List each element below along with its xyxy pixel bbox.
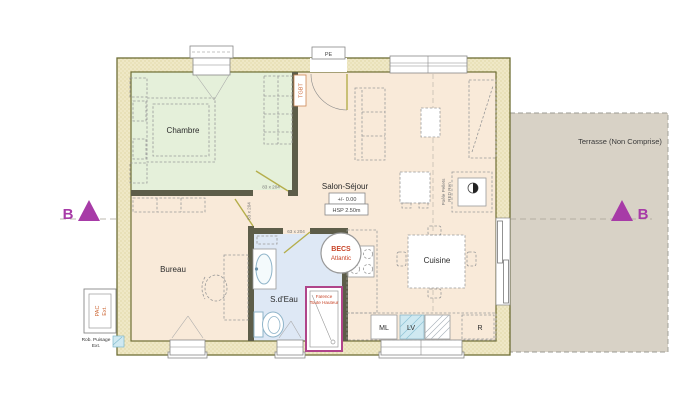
outdoor-tap-label1: Rob. Puisage bbox=[82, 337, 111, 343]
ceiling-height-label: HSP 2.50m bbox=[332, 208, 360, 214]
wall-chambre-bottom-stub bbox=[288, 190, 298, 196]
level-annotations: +/- 0.00 HSP 2.50m bbox=[325, 193, 368, 215]
washbasin-bowl bbox=[256, 254, 272, 284]
heat-pump-label2: Ext. bbox=[102, 306, 108, 316]
toilet bbox=[254, 312, 284, 337]
wall-sdeau-top-left bbox=[254, 228, 283, 234]
stove-label-line1: Poêle Pellets bbox=[441, 178, 446, 206]
water-heater: BECS Atlantic bbox=[321, 233, 361, 273]
heat-pump-label1: PAC bbox=[95, 306, 101, 317]
shower: Faïence Toute Hauteur bbox=[306, 287, 342, 351]
floor-plan-drawing: Terrasse (Non Comprise) bbox=[0, 0, 700, 420]
heat-pump-unit: PAC Ext. bbox=[84, 289, 116, 333]
water-heater-label1: BECS bbox=[331, 246, 351, 253]
salon-top-window bbox=[390, 56, 467, 73]
sdeau-label: S.d'Eau bbox=[270, 295, 298, 304]
bureau-window bbox=[170, 340, 205, 355]
shower-tiling-label1: Faïence bbox=[316, 294, 333, 299]
bay-window-panel-1 bbox=[498, 221, 503, 263]
bureau-door-dim: 83 x 204 bbox=[247, 202, 252, 220]
washing-machine-label: ML bbox=[379, 325, 389, 332]
washbasin-tap bbox=[255, 267, 258, 270]
section-triangle-left-icon bbox=[78, 200, 100, 221]
section-letter-left: B bbox=[63, 206, 74, 223]
chambre-label: Chambre bbox=[167, 126, 200, 135]
bay-window-panel-2 bbox=[504, 260, 509, 303]
terrace: Terrasse (Non Comprise) bbox=[510, 113, 668, 352]
water-heater-body bbox=[321, 233, 361, 273]
altitude-label: +/- 0.00 bbox=[338, 197, 357, 203]
entry-door-opening bbox=[310, 58, 347, 72]
cuisine-label: Cuisine bbox=[424, 256, 451, 265]
terrace-area bbox=[510, 113, 668, 352]
dishwasher-label: LV bbox=[407, 325, 415, 332]
section-letter-right: B bbox=[638, 206, 649, 223]
kitchen-sink bbox=[425, 315, 450, 339]
floor-chambre bbox=[131, 72, 292, 190]
floor-plan-page: Terrasse (Non Comprise) bbox=[0, 0, 700, 420]
stove-label-line2: RED Ren bbox=[447, 182, 452, 202]
outdoor-tap-label2: Ext. bbox=[92, 343, 100, 349]
section-marker-left: B bbox=[63, 200, 100, 223]
outdoor-tap: Rob. Puisage Ext. bbox=[82, 336, 124, 349]
coffee-table bbox=[400, 172, 430, 203]
water-heater-label2: Atlantic bbox=[331, 255, 351, 262]
washbasin bbox=[253, 249, 276, 289]
outdoor-tap-symbol bbox=[113, 336, 124, 347]
shower-tiling-label2: Toute Hauteur bbox=[310, 300, 339, 305]
fridge-label: R bbox=[477, 325, 482, 332]
sdeau-window bbox=[277, 340, 303, 355]
electrical-panel-label: TGBT bbox=[299, 83, 305, 98]
terrace-label: Terrasse (Non Comprise) bbox=[578, 137, 662, 146]
chambre-window-shutter-box bbox=[190, 46, 233, 58]
wall-chambre-bottom bbox=[131, 190, 253, 196]
chambre-window bbox=[193, 58, 230, 75]
chambre-door-dim: 83 x 204 bbox=[262, 185, 280, 190]
sdeau-door-dim: 63 x 204 bbox=[287, 229, 305, 234]
entry-door-tag: PE bbox=[325, 52, 333, 58]
cuisine-window bbox=[381, 340, 462, 355]
salon-label: Salon-Séjour bbox=[322, 182, 369, 191]
bureau-label: Bureau bbox=[160, 265, 186, 274]
armchair bbox=[421, 108, 440, 137]
toilet-tank bbox=[254, 312, 263, 337]
electrical-panel: TGBT bbox=[294, 75, 306, 106]
